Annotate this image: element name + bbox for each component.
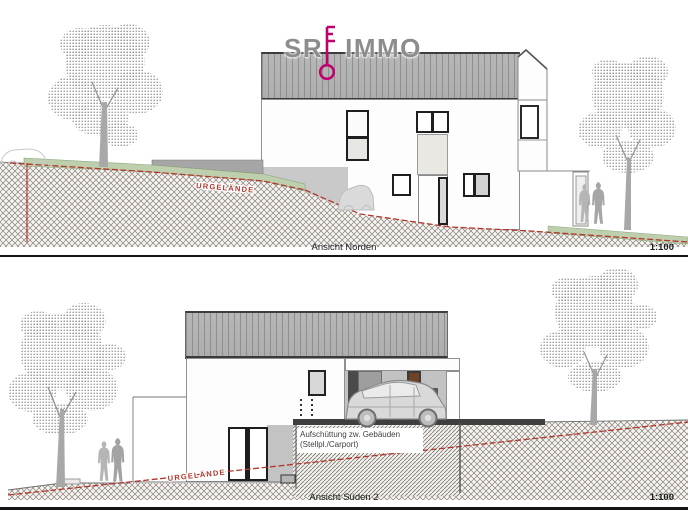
south-elevation-view: URGELÄNDE Aufschüttung zw. Gebäuden (Ste… [0,257,688,512]
scale-label: 1:100 [650,492,674,503]
side-wing [518,50,547,171]
south-terrain-layer: URGELÄNDE [0,257,688,512]
logo-text-immo: IMMO [345,33,422,64]
view-divider [0,255,688,257]
north-elevation-view: URGELÄNDE Ansicht Norden 1:100 SR IMMO [0,0,688,257]
logo: SR IMMO [284,33,422,64]
vent-box [281,475,295,483]
architectural-drawing-sheet: URGELÄNDE Ansicht Norden 1:100 SR IMMO [0,0,688,512]
fill-annotation-line1: Aufschüttung zw. Gebäuden [300,430,420,440]
car-silhouette [346,381,446,427]
fill-annotation: Aufschüttung zw. Gebäuden (Stellpl./Carp… [297,428,423,453]
person-silhouette [111,438,124,482]
person-silhouette [592,182,605,224]
view-title: Ansicht Norden [0,242,688,253]
tree-graphic [540,268,657,425]
person-silhouette [98,441,110,481]
railing-posts [301,399,312,421]
terrain-label: URGELÄNDE [167,467,226,483]
wing-window [521,106,538,138]
sheet-bottom-rule [0,507,688,510]
key-icon [316,24,338,82]
view-title: Ansicht Süden 2 [0,492,688,503]
car-silhouette-garage [338,185,374,210]
garden-step [63,479,80,484]
tree-graphic [48,24,163,167]
fill-annotation-line2: (Stellpl./Carport) [300,440,420,450]
ground-hatch-right [460,420,688,497]
scale-label: 1:100 [650,242,674,253]
north-caption-row: Ansicht Norden 1:100 [0,242,688,256]
south-caption-row: Ansicht Süden 2 1:100 [0,492,688,506]
